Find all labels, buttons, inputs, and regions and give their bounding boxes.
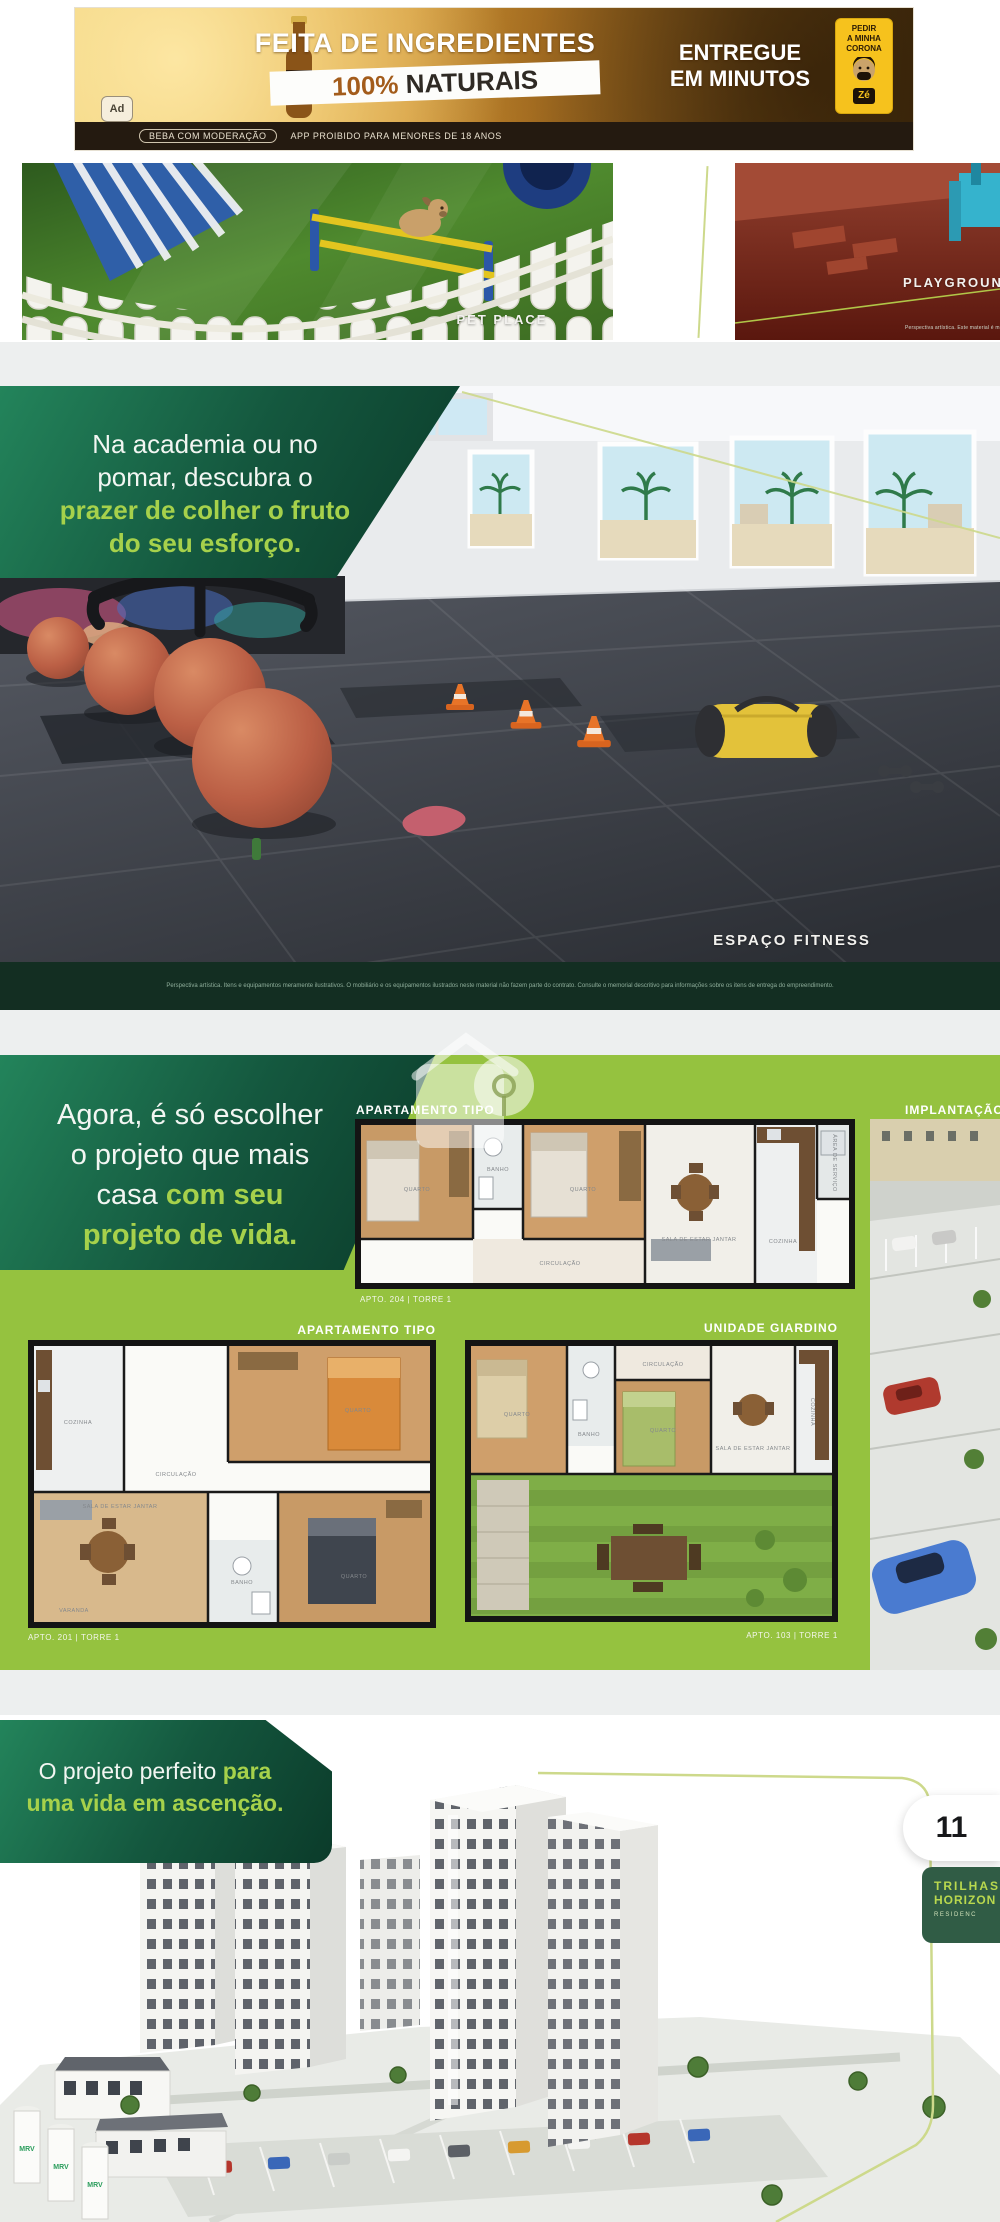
page-divider-line bbox=[698, 166, 709, 338]
pet-place-image: PET PLACE bbox=[22, 163, 613, 340]
fitness-headline-line3: prazer de colher o fruto bbox=[10, 494, 400, 527]
ad-choices-badge[interactable]: Ad bbox=[101, 96, 133, 122]
brochure-page: FEITA DE INGREDIENTES 100% NATURAIS ENTR… bbox=[0, 0, 1000, 2222]
plan3-floorplan: QUARTO BANHO QUARTO SALA DE ESTAR JANTAR… bbox=[465, 1340, 838, 1622]
plan1-caption: APTO. 204 | TORRE 1 bbox=[360, 1295, 452, 1304]
project-badge-line3: RESIDENC bbox=[934, 1912, 1000, 1918]
ad-disclaimer-pill: BEBA COM MODERAÇÃO bbox=[139, 129, 277, 143]
svg-text:SALA DE ESTAR JANTAR: SALA DE ESTAR JANTAR bbox=[662, 1237, 737, 1243]
hero-headline-line2: uma vida em ascenção. bbox=[0, 1787, 310, 1819]
ad-delivery-line1: ENTREGUE bbox=[645, 40, 835, 66]
water-bottle bbox=[252, 838, 261, 860]
ad-highlight-pct: 100% bbox=[331, 69, 399, 102]
plans-headline-line2: o projeto que mais bbox=[0, 1135, 380, 1175]
svg-text:ÁREA DE SERVIÇO: ÁREA DE SERVIÇO bbox=[831, 1134, 838, 1192]
svg-text:QUARTO: QUARTO bbox=[504, 1412, 531, 1418]
svg-text:BANHO: BANHO bbox=[487, 1167, 509, 1173]
fitness-headline: Na academia ou no pomar, descubra o praz… bbox=[10, 428, 400, 560]
fitness-label: ESPAÇO FITNESS bbox=[692, 932, 892, 949]
plans-headline-line3: casa com seu bbox=[0, 1175, 380, 1215]
svg-text:CIRCULAÇÃO: CIRCULAÇÃO bbox=[155, 1471, 196, 1478]
svg-text:SALA DE ESTAR JANTAR: SALA DE ESTAR JANTAR bbox=[83, 1504, 158, 1510]
implant-render bbox=[870, 1119, 1000, 1670]
svg-text:CIRCULAÇÃO: CIRCULAÇÃO bbox=[539, 1260, 580, 1267]
svg-text:COZINHA: COZINHA bbox=[64, 1420, 92, 1426]
implant-label: IMPLANTAÇÃO bbox=[905, 1103, 1000, 1117]
ad-banner[interactable]: FEITA DE INGREDIENTES 100% NATURAIS ENTR… bbox=[75, 8, 913, 150]
plan2-floorplan: COZINHA QUARTO CIRCULAÇÃO SALA DE ESTAR … bbox=[28, 1340, 436, 1628]
pet-place-label: PET PLACE bbox=[402, 312, 602, 327]
playground-note: Perspectiva artística. Este material é m… bbox=[905, 325, 1000, 331]
builder-watermark-icon bbox=[410, 1030, 542, 1158]
playground-label: PLAYGROUND bbox=[903, 275, 1000, 290]
ad-cta-line1: PEDIR bbox=[836, 24, 892, 34]
svg-text:QUARTO: QUARTO bbox=[341, 1574, 368, 1580]
svg-text:VARANDA: VARANDA bbox=[59, 1608, 89, 1614]
plans-headline: Agora, é só escolher o projeto que mais … bbox=[0, 1095, 380, 1255]
fitness-headline-line4: do seu esforço. bbox=[10, 527, 400, 560]
ad-cta-line2: A MINHA bbox=[836, 34, 892, 44]
hero-section: MRV MRV MRV bbox=[0, 1715, 1000, 2222]
svg-text:QUARTO: QUARTO bbox=[345, 1408, 372, 1414]
ad-delivery-line2: EM MINUTOS bbox=[645, 66, 835, 92]
ad-banner-visual: FEITA DE INGREDIENTES 100% NATURAIS ENTR… bbox=[75, 8, 913, 122]
fitness-note: Perspectiva artística. Itens e equipamen… bbox=[40, 983, 960, 989]
plan3-label: UNIDADE GIARDINO bbox=[600, 1321, 838, 1335]
page-number-badge: 11 bbox=[903, 1795, 1000, 1861]
ad-headline: FEITA DE INGREDIENTES bbox=[225, 28, 625, 59]
mascot-icon bbox=[851, 57, 877, 83]
plan2-label: APARTAMENTO TIPO bbox=[150, 1323, 436, 1337]
amenities-strip: PET PLACE bbox=[0, 162, 1000, 342]
ad-disclaimer-strip: BEBA COM MODERAÇÃO APP PROIBIDO PARA MEN… bbox=[75, 122, 913, 150]
svg-text:SALA DE ESTAR JANTAR: SALA DE ESTAR JANTAR bbox=[716, 1446, 791, 1452]
ad-delivery-text: ENTREGUE EM MINUTOS bbox=[645, 40, 835, 92]
plan2-caption: APTO. 201 | TORRE 1 bbox=[28, 1633, 120, 1642]
ad-cta-line3: CORONA bbox=[836, 44, 892, 54]
plans-headline-line1: Agora, é só escolher bbox=[0, 1095, 380, 1135]
hero-headline: O projeto perfeito para uma vida em asce… bbox=[0, 1755, 310, 1819]
ad-disclaimer-text: APP PROIBIDO PARA MENORES DE 18 ANOS bbox=[291, 131, 502, 141]
plan3-caption: APTO. 103 | TORRE 1 bbox=[650, 1631, 838, 1640]
svg-text:QUARTO: QUARTO bbox=[570, 1187, 597, 1193]
svg-text:QUARTO: QUARTO bbox=[404, 1187, 431, 1193]
project-badge: TRILHAS HORIZON RESIDENC bbox=[922, 1867, 1000, 1943]
ad-highlight-rest: NATURAIS bbox=[398, 64, 539, 100]
section-gap-3 bbox=[0, 1670, 1000, 1715]
svg-text:CIRCULAÇÃO: CIRCULAÇÃO bbox=[642, 1361, 683, 1368]
svg-text:BANHO: BANHO bbox=[231, 1580, 253, 1586]
svg-text:COZINHA: COZINHA bbox=[769, 1239, 797, 1245]
duffel-bag bbox=[695, 699, 837, 758]
ze-delivery-logo: Zé bbox=[853, 88, 875, 104]
ad-cta-button[interactable]: PEDIR A MINHA CORONA Zé bbox=[835, 18, 893, 114]
svg-text:COZINHA: COZINHA bbox=[809, 1398, 815, 1426]
fitness-section: Na academia ou no pomar, descubra o praz… bbox=[0, 386, 1000, 1010]
plans-headline-line4: projeto de vida. bbox=[0, 1215, 380, 1255]
fitness-headline-line2: pomar, descubra o bbox=[10, 461, 400, 494]
section-gap-1 bbox=[0, 342, 1000, 386]
hero-headline-line1: O projeto perfeito para bbox=[0, 1755, 310, 1787]
fitness-disclaimer-strip: Perspectiva artística. Itens e equipamen… bbox=[0, 962, 1000, 1010]
playground-image: PLAYGROUND Perspectiva artística. Este m… bbox=[735, 163, 1000, 340]
project-badge-line2: HORIZON bbox=[934, 1893, 1000, 1907]
svg-text:QUARTO: QUARTO bbox=[650, 1428, 677, 1434]
fitness-headline-line1: Na academia ou no bbox=[10, 428, 400, 461]
svg-text:BANHO: BANHO bbox=[578, 1432, 600, 1438]
project-badge-line1: TRILHAS bbox=[934, 1879, 1000, 1893]
